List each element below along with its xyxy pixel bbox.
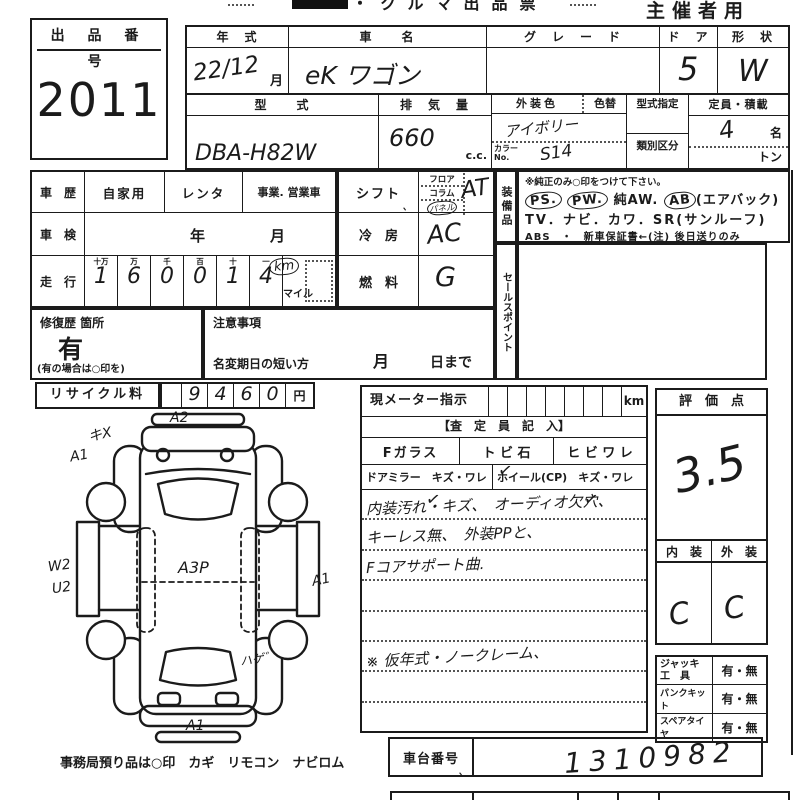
annotation-a2: A2: [170, 410, 188, 426]
ab-suffix: (エアバック): [696, 193, 779, 208]
ext-color-value: アイボリー: [503, 113, 579, 142]
year-value: 22/12: [192, 52, 261, 87]
assessor-note-line: 内装汚れ・キズ、 オーディオ欠穴、: [366, 490, 613, 520]
model-label: 型 式: [187, 95, 378, 116]
jack-label2: 工 具: [660, 671, 712, 683]
crack-label: ヒ ビ ワ レ: [554, 438, 646, 464]
cc-unit: c.c.: [466, 149, 487, 162]
wheel-label: ホイール(CP) キズ・ワレ: [493, 465, 646, 489]
year-cell: 年 式 22/12 月: [187, 27, 289, 93]
annotation-a1-front: A1: [69, 447, 90, 466]
sales-point-box: [517, 243, 767, 380]
exterior-label: 外 装: [712, 541, 766, 561]
redacted-logo: [292, 0, 348, 9]
meter-cell: [583, 387, 602, 416]
displacement-value: 660: [389, 124, 435, 152]
equipment-line2: TV．ナビ．カワ．SR(サンルーフ): [525, 209, 782, 228]
model-value: DBA-H82W: [195, 141, 316, 166]
year-label: 年 式: [187, 27, 288, 48]
shape-value: W: [738, 54, 768, 89]
mileage-digit-cell: 十1: [217, 256, 250, 306]
shift-value: AT: [459, 174, 490, 204]
lot-number: 2011: [32, 73, 166, 127]
meter-km-unit: km: [621, 387, 646, 416]
equipment-note: ※純正のみ○印をつけて下さい。: [525, 174, 782, 188]
doors-label: ド ア: [660, 27, 717, 48]
mileage-digit-cell: 十万1: [85, 256, 118, 306]
door-mirror-label: ドアミラー キズ・ワレ: [362, 465, 493, 489]
fuel-value: G: [435, 262, 456, 293]
repair-note: (有の場合は○印を): [37, 360, 125, 375]
sales-point-label: セールスポイント: [499, 272, 514, 352]
exterior-grade: C: [721, 589, 748, 627]
model-cell: 型 式 DBA-H82W: [187, 95, 379, 168]
meter-cell: [545, 387, 564, 416]
meter-cell: [526, 387, 545, 416]
deadline-day: 日まで: [430, 352, 472, 372]
aw-item: 純AW.: [614, 193, 659, 208]
stone-chip-label: ト ビ 石: [460, 438, 554, 464]
meter-label: 現メーター指示: [362, 387, 488, 416]
condition-diagram: A2 キX A1 W2 U2 A3P A1 ハゲ゛ A1: [30, 412, 360, 747]
car-name-value: eK ワゴン: [305, 56, 420, 92]
mileage-digit-cell: 千0: [151, 256, 184, 306]
annotation-u2: U2: [51, 579, 72, 598]
assessor-note-line: Fコアサポート曲.: [366, 553, 485, 578]
recycle-value-box: 9 4 6 0 円: [160, 382, 315, 409]
meter-cell: [564, 387, 583, 416]
history-private: 自家用: [85, 172, 165, 212]
type-designation-label: 型式指定: [627, 95, 688, 134]
caution-label: 注意事項: [205, 310, 493, 331]
displacement-label: 排 気 量: [379, 95, 491, 116]
equipment-box: ※純正のみ○印をつけて下さい。 PS. PW. 純AW. AB(エアバック) T…: [517, 170, 790, 243]
meter-cell: [507, 387, 526, 416]
capacity-value: 4: [717, 115, 737, 145]
assessor-note-line: ※ 仮年式・ノークレーム、: [366, 641, 549, 671]
recycle-label-box: リサイクル料: [35, 382, 160, 409]
grade-label: グ レ ー ド: [487, 27, 659, 48]
digit-value: 0: [184, 264, 216, 289]
history-business: 事業. 営業車: [243, 172, 335, 212]
color-change-label: 色替: [582, 95, 626, 113]
shift-table: シフト 、 フロア コラム パネル AT 冷 房 AC 燃 料 G: [337, 170, 495, 308]
class-division-label: 類別区分: [627, 134, 688, 168]
handwritten-tick: 、: [458, 762, 470, 779]
office-items-note: 事務局預り品は○印 カギ リモコン ナビロム: [60, 752, 344, 771]
inspection-month: 月: [270, 225, 285, 246]
score-box: 評 価 点 3.5 内 装 外 装 C C: [655, 388, 768, 645]
repair-label: 修復歴 箇所: [32, 310, 201, 331]
inspection-label: 車 検: [32, 213, 85, 255]
history-table: 車 歴 自家用 レンタ 事業. 営業車 車 検 年 月 走 行 十万1 万6 千…: [30, 170, 337, 308]
capacity-label: 定員・積載: [689, 95, 788, 116]
displacement-cell: 排 気 量 660 c.c.: [379, 95, 492, 168]
shift-opt-floor: フロア: [421, 173, 463, 187]
annotation-a3p: A3P: [178, 558, 209, 577]
annotation-w2: W2: [47, 556, 72, 575]
shift-options: フロア コラム パネル: [421, 173, 465, 215]
mileage-digit-cell: 万6: [118, 256, 151, 306]
car-name-label: 車 名: [289, 27, 486, 48]
assessor-note-line: [362, 612, 646, 642]
jack-value: 有・無: [713, 657, 766, 684]
recycle-digit: 6: [234, 383, 259, 405]
dotted-mark: [228, 4, 254, 6]
km-unit-circled: km: [268, 257, 300, 277]
caution-box: 注意事項 名変期日の短い方 月 日まで: [203, 308, 495, 380]
mileage-digit-cell: 百0: [184, 256, 217, 306]
cutoff-row: [390, 791, 790, 800]
color-no-label: カラーNo.: [494, 145, 524, 163]
ton-label: トン: [758, 148, 782, 165]
organizer-label: 主催者用: [646, 0, 750, 23]
car-name-cell: 車 名 eK ワゴン: [289, 27, 487, 93]
recycle-label: リサイクル料: [37, 384, 158, 406]
vehicle-table: 年 式 22/12 月 車 名 eK ワゴン グ レ ー ド ド ア 5 形 状: [185, 25, 790, 170]
equipment-label-box: 装備品: [495, 170, 517, 243]
interior-grade: C: [666, 595, 693, 633]
meter-cells: km: [488, 387, 646, 416]
digit-value: 6: [118, 264, 150, 289]
ext-color-label: 外装色: [492, 95, 582, 113]
equipment-line1: PS. PW. 純AW. AB(エアバック): [525, 189, 782, 209]
history-label: 車 歴: [32, 172, 85, 212]
unit-dotted-box: [305, 260, 333, 302]
digit-value: 1: [217, 264, 249, 289]
inspection-year: 年: [190, 225, 205, 246]
annotation-a1-rear: A1: [186, 718, 204, 734]
month-unit: 月: [270, 70, 283, 89]
shape-label: 形 状: [718, 27, 788, 48]
sheet-right-edge: [791, 170, 793, 755]
cooling-value: AC: [426, 217, 463, 249]
assessor-note-line: キーレス無、 外装PPと、: [366, 521, 542, 548]
digit-value: 0: [151, 264, 183, 289]
doors-value: 5: [678, 50, 698, 88]
grade-cell: グ レ ー ド: [487, 27, 660, 93]
equipment-label: 装備品: [498, 186, 514, 228]
handwritten-tick: 、: [402, 197, 414, 214]
chassis-value: 1310982: [563, 735, 739, 780]
sales-point-label-box: セールスポイント: [495, 243, 517, 380]
puncture-kit-label: パンクキット: [657, 685, 713, 712]
cooling-label: 冷 房: [339, 213, 419, 255]
fuel-label: 燃 料: [339, 256, 419, 306]
name-change-deadline: 名変期日の短い方: [213, 355, 309, 372]
mileage-unit-cell: km マイル: [283, 256, 335, 306]
score-label: 評 価 点: [657, 390, 766, 416]
ext-color-cell: 外装色 色替 アイボリー カラーNo. S14: [492, 95, 627, 168]
recycle-digit: 9: [182, 383, 207, 405]
lot-number-box: 出 品 番 号 2011: [30, 18, 168, 160]
equipment-line3: ABS ・ 新車保証書←(注) 後日送りのみ: [525, 228, 782, 243]
history-rental: レンタ: [165, 172, 243, 212]
capacity-cell: 定員・積載 4 名 トン: [689, 95, 788, 168]
designation-cell: 型式指定 類別区分: [627, 95, 689, 168]
repair-box: 修復歴 箇所 有 (有の場合は○印を): [30, 308, 203, 380]
doors-cell: ド ア 5: [660, 27, 718, 93]
page-title: ・クルマ出品票: [352, 0, 548, 14]
meter-cell: [488, 387, 507, 416]
mileage-label: 走 行: [32, 256, 85, 306]
recycle-digit: 0: [260, 383, 285, 405]
assessor-note-line: [362, 672, 646, 702]
chassis-box: 車台番号 、 1310982: [388, 737, 763, 777]
ps-circled: PS.: [524, 190, 562, 210]
assessor-note-line: [362, 581, 646, 611]
assessor-header: 【査 定 員 記 入】: [362, 417, 646, 438]
tools-box: ジャッキ 工 具 有・無 パンクキット 有・無 スペアタイヤ 有・無: [655, 655, 768, 743]
ab-circled: AB: [663, 191, 696, 211]
capacity-unit: 名: [770, 124, 782, 141]
deadline-month: 月: [373, 348, 389, 372]
meter-cell: [602, 387, 621, 416]
interior-label: 内 装: [657, 541, 712, 561]
assessor-panel: 現メーター指示 km 【査 定 員 記 入】 Fガラス ト ビ 石 ヒ ビ ワ …: [360, 385, 648, 733]
puncture-kit-value: 有・無: [713, 685, 766, 712]
auction-sheet: ・クルマ出品票 主催者用 出 品 番 号 2011 年 式 22/12 月 車 …: [0, 0, 800, 800]
assessor-notes: 内装汚れ・キズ、 オーディオ欠穴、 キーレス無、 外装PPと、 Fコアサポート曲…: [362, 490, 646, 731]
yen-label: 円: [286, 384, 313, 407]
pw-circled: PW.: [567, 190, 609, 210]
jack-label: ジャッキ: [660, 659, 712, 671]
score-value: 3.5: [668, 434, 752, 504]
front-glass-label: Fガラス: [362, 438, 460, 464]
shape-cell: 形 状 W: [718, 27, 788, 93]
assessor-note-line: [362, 703, 646, 731]
dotted-mark: [570, 4, 596, 6]
digit-value: 1: [85, 264, 117, 289]
shift-opt-column: コラム: [421, 187, 463, 201]
lot-number-label: 出 品 番 号: [37, 23, 161, 51]
recycle-digit: 4: [208, 383, 233, 405]
color-no-value: S14: [539, 141, 574, 165]
